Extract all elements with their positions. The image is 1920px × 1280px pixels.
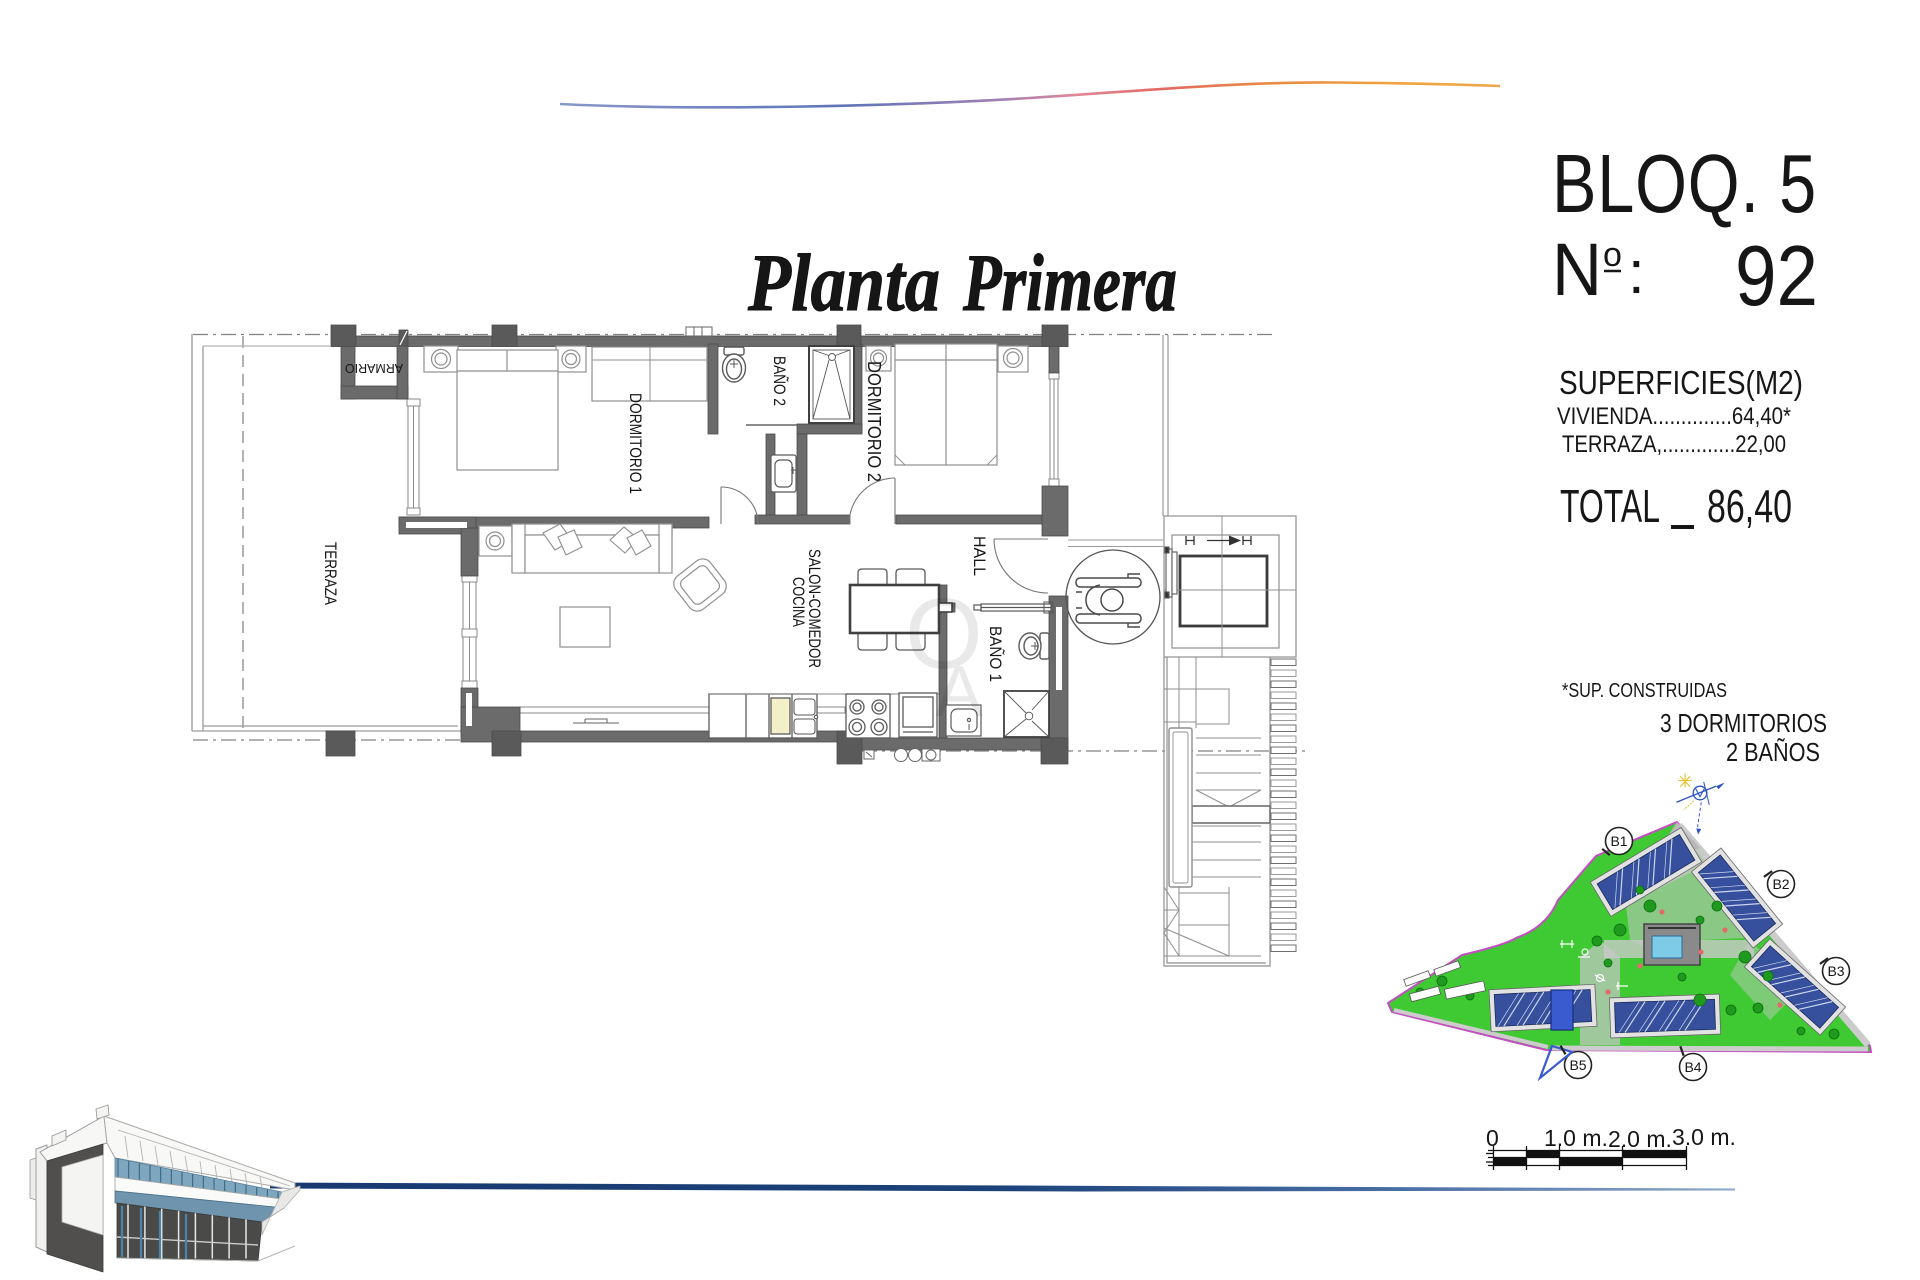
- svg-text:B4: B4: [1684, 1059, 1701, 1075]
- svg-text:*SUP. CONSTRUIDAS: *SUP. CONSTRUIDAS: [1562, 680, 1727, 702]
- svg-text:B2: B2: [1772, 876, 1789, 892]
- svg-text:COCINA: COCINA: [789, 577, 808, 627]
- svg-text:ARMARIO: ARMARIO: [345, 361, 403, 376]
- svg-text:B1: B1: [1610, 833, 1627, 849]
- svg-text:DORMITORIO 1: DORMITORIO 1: [626, 393, 645, 494]
- svg-text:92: 92: [1735, 229, 1818, 324]
- svg-text:A: A: [935, 652, 983, 732]
- svg-text:0: 0: [1486, 1125, 1499, 1151]
- svg-text:Primera: Primera: [962, 237, 1177, 328]
- svg-text:Planta: Planta: [747, 237, 940, 328]
- svg-text:1.0 m.: 1.0 m.: [1544, 1125, 1608, 1151]
- svg-text:TERRAZA,.............22,00: TERRAZA,.............22,00: [1562, 431, 1786, 458]
- svg-text:HALL: HALL: [970, 536, 989, 576]
- svg-text::: :: [1628, 239, 1645, 306]
- svg-text:3 DORMITORIOS: 3 DORMITORIOS: [1660, 708, 1827, 738]
- svg-text:DORMITORIO 2: DORMITORIO 2: [864, 361, 884, 482]
- svg-text:SUPERFICIES(M2): SUPERFICIES(M2): [1559, 364, 1803, 401]
- svg-text:TOTAL: TOTAL: [1560, 480, 1660, 532]
- svg-text:BLOQ. 5: BLOQ. 5: [1552, 137, 1817, 230]
- svg-text:86,40: 86,40: [1707, 480, 1792, 532]
- svg-text:o: o: [1603, 236, 1622, 274]
- svg-text:2 BAÑOS: 2 BAÑOS: [1726, 737, 1820, 767]
- svg-text:VIVIENDA..............64,40*: VIVIENDA..............64,40*: [1557, 403, 1791, 430]
- svg-text:2.0 m.: 2.0 m.: [1608, 1126, 1672, 1152]
- svg-text:TERRAZA: TERRAZA: [321, 542, 340, 606]
- svg-text:BAÑO 2: BAÑO 2: [770, 356, 789, 406]
- svg-text:N: N: [1552, 228, 1602, 311]
- svg-text:3.0 m.: 3.0 m.: [1672, 1124, 1736, 1150]
- svg-text:B5: B5: [1569, 1057, 1586, 1073]
- svg-text:BAÑO 1: BAÑO 1: [986, 626, 1005, 682]
- svg-text:B3: B3: [1827, 963, 1844, 979]
